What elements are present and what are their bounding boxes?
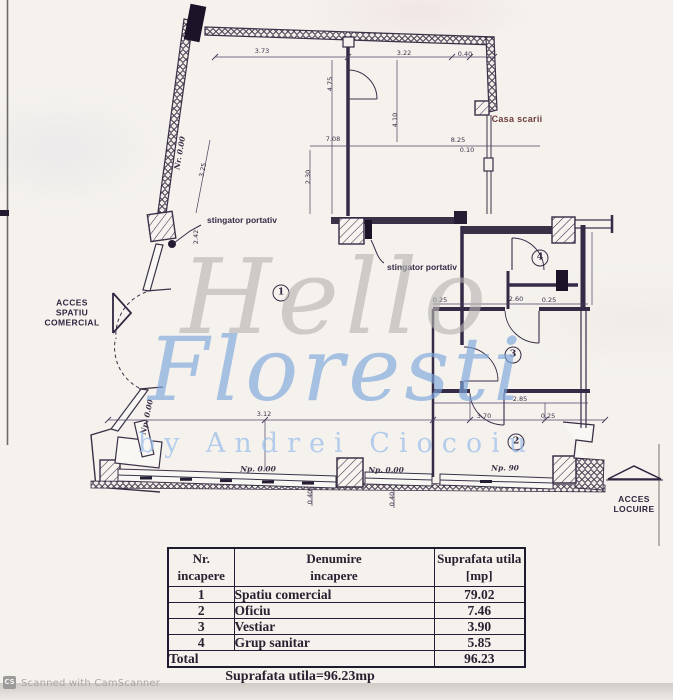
cell-name: Vestiar bbox=[234, 619, 434, 635]
header-suprafata: Suprafata utila [mp] bbox=[434, 548, 525, 587]
room-number-2: 2 bbox=[508, 434, 525, 451]
casa-scarii-label: Casa scarii bbox=[492, 114, 543, 124]
table-row: 2 Oficiu 7.46 bbox=[168, 603, 525, 619]
room-number-1: 1 bbox=[273, 285, 290, 302]
dim-label: 0.25 bbox=[433, 297, 447, 304]
camscanner-icon: CS bbox=[3, 676, 16, 689]
top-door bbox=[348, 70, 377, 99]
acces-spatiu-comercial-label: ACCES SPATIU COMERCIAL bbox=[44, 298, 99, 327]
level-label: Np. 0.00 bbox=[240, 465, 276, 473]
total-label: Total bbox=[168, 651, 434, 668]
dim-label: 2.85 bbox=[513, 396, 527, 403]
dim-label: 3.73 bbox=[255, 48, 269, 55]
header-denumire: Denumire incapere bbox=[234, 548, 434, 587]
dim-label: 3.70 bbox=[477, 413, 491, 420]
acces-locuire-arrow bbox=[606, 466, 663, 480]
header-line: [mp] bbox=[435, 568, 525, 584]
bottom-wall bbox=[91, 422, 605, 492]
acces-spatiu-line3: COMERCIAL bbox=[44, 318, 99, 328]
acces-locuire-label: ACCES LOCUIRE bbox=[613, 495, 654, 515]
acces-locuire-line2: LOCUIRE bbox=[613, 505, 654, 515]
room-number-3: 3 bbox=[505, 347, 522, 364]
total-value: 96.23 bbox=[434, 651, 525, 668]
cell-area: 5.85 bbox=[434, 635, 525, 651]
level-label: Np. 90 bbox=[491, 464, 519, 472]
cell-nr: 4 bbox=[168, 635, 234, 651]
entrance-double-door bbox=[115, 292, 146, 388]
level-label: Np. 0.00 bbox=[368, 466, 404, 474]
outer-walls bbox=[91, 4, 497, 492]
interior-walls bbox=[331, 37, 612, 477]
header-line: Suprafata utila bbox=[435, 551, 525, 567]
dim-label: 2.30 bbox=[305, 170, 312, 184]
cell-area: 7.46 bbox=[434, 603, 525, 619]
header-line: Denumire bbox=[235, 551, 434, 567]
dim-label: 8.25 bbox=[451, 137, 465, 144]
cell-nr: 2 bbox=[168, 603, 234, 619]
dim-label: 0.40 bbox=[458, 51, 472, 58]
header-line: Nr. bbox=[169, 551, 234, 567]
dim-label: 0.40 bbox=[307, 490, 314, 504]
dim-label: 2.60 bbox=[509, 296, 523, 303]
cell-name: Grup sanitar bbox=[234, 635, 434, 651]
dim-label: 0.10 bbox=[460, 147, 474, 154]
table-total-row: Total 96.23 bbox=[168, 651, 525, 668]
area-table: Nr. incapere Denumire incapere Suprafata… bbox=[167, 547, 526, 668]
dim-label: 7.08 bbox=[326, 136, 340, 143]
header-line: incapere bbox=[235, 568, 434, 584]
stingator-portativ-label-right: stingator portativ bbox=[387, 263, 457, 273]
dim-label: 3.12 bbox=[257, 411, 271, 418]
dim-label: 3.22 bbox=[397, 50, 411, 57]
table-header-row: Nr. incapere Denumire incapere Suprafata… bbox=[168, 548, 525, 587]
scanned-floor-plan-page: 3.73 3.22 0.40 4.75 4.10 7.08 8.25 0.10 … bbox=[0, 0, 673, 700]
header-nr-incapere: Nr. incapere bbox=[168, 548, 234, 587]
cell-name: Oficiu bbox=[234, 603, 434, 619]
dim-label: 4.75 bbox=[327, 77, 334, 91]
cell-area: 3.90 bbox=[434, 619, 525, 635]
cell-nr: 1 bbox=[168, 587, 234, 603]
dim-label: 0.25 bbox=[542, 297, 556, 304]
table-row: 3 Vestiar 3.90 bbox=[168, 619, 525, 635]
cell-nr: 3 bbox=[168, 619, 234, 635]
dim-label: 0.40 bbox=[389, 492, 396, 506]
cell-area: 79.02 bbox=[434, 587, 525, 603]
dim-label: 4.10 bbox=[392, 113, 399, 127]
stingator-portativ-label-left: stingator portativ bbox=[207, 216, 277, 226]
header-line: incapere bbox=[169, 568, 234, 584]
cell-name: Spatiu comercial bbox=[234, 587, 434, 603]
room-number-4: 4 bbox=[532, 250, 549, 267]
camscanner-text: Scanned with CamScanner bbox=[21, 678, 160, 689]
dim-label: 2.42 bbox=[193, 230, 200, 244]
table-row: 4 Grup sanitar 5.85 bbox=[168, 635, 525, 651]
dim-label: 0.25 bbox=[541, 413, 555, 420]
table-row: 1 Spatiu comercial 79.02 bbox=[168, 587, 525, 603]
